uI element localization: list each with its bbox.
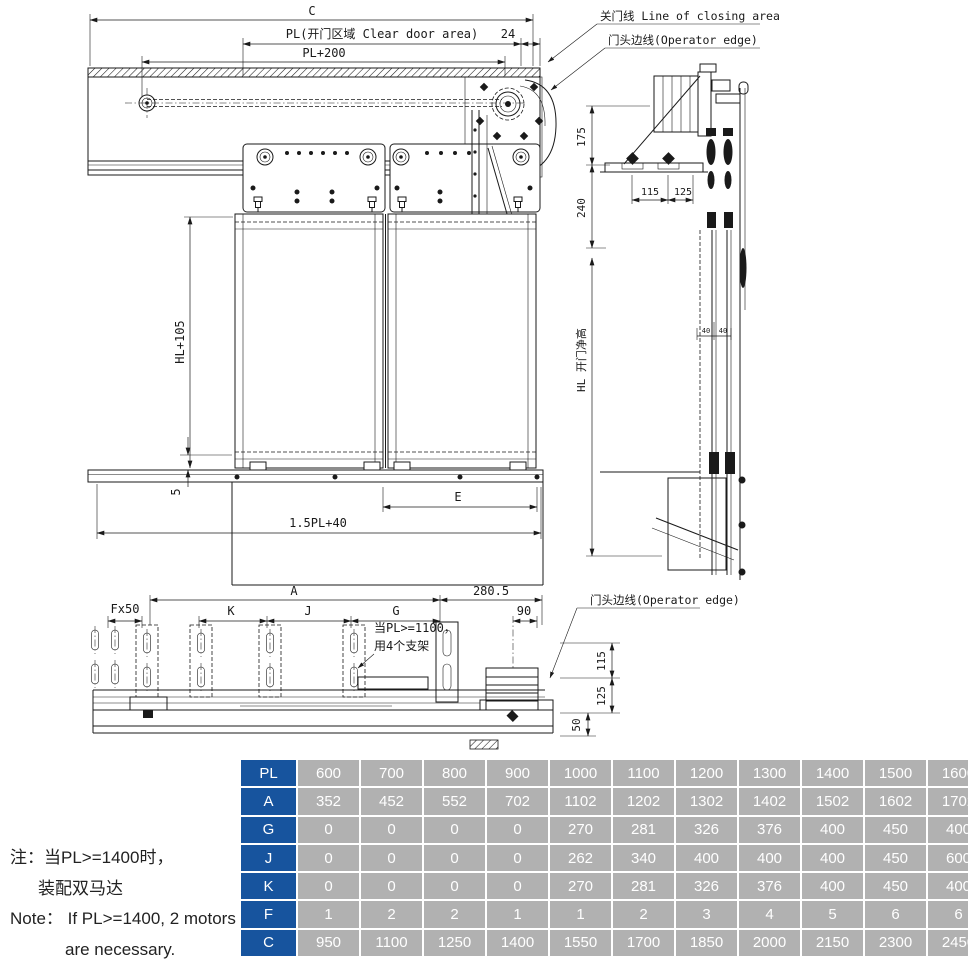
table-cell: 1: [298, 901, 359, 927]
side-rollers: [706, 128, 733, 228]
table-cell: 2: [424, 901, 485, 927]
drawing-sheet: C PL(开门区域 Clear door area) 24 PL+200 关门线…: [0, 0, 968, 979]
dim-a: A: [290, 584, 298, 598]
table-cell: 2450: [928, 930, 968, 956]
note-line-zh-2: 装配双马达: [10, 874, 245, 905]
table-cell: 1700: [613, 930, 674, 956]
table-cell: 281: [613, 817, 674, 843]
table-cell: 552: [424, 788, 485, 814]
table-cell: 0: [361, 817, 422, 843]
dim-24: 24: [501, 27, 515, 41]
table-cell: 800: [424, 760, 485, 786]
dim-125-plan: 125: [595, 686, 608, 706]
table-cell: 0: [424, 817, 485, 843]
table-cell: 270: [550, 873, 611, 899]
table-cell: 1100: [613, 760, 674, 786]
table-cell: 400: [802, 817, 863, 843]
dim-40-b: 40: [719, 327, 727, 335]
dim-240: 240: [575, 198, 588, 218]
table-cell: 702: [487, 788, 548, 814]
label-closing-line: 关门线 Line of closing area: [600, 9, 780, 23]
table-cell: 1000: [550, 760, 611, 786]
table-cell: 400: [928, 873, 968, 899]
table-cell: 400: [802, 873, 863, 899]
dim-115-side: 115: [641, 187, 659, 198]
dim-pl-clear: PL(开门区域 Clear door area): [286, 26, 479, 41]
table-cell: 3: [676, 901, 737, 927]
table-cell: 0: [361, 873, 422, 899]
table-cell: 400: [928, 817, 968, 843]
table-cell: 1400: [802, 760, 863, 786]
table-cell: 1302: [676, 788, 737, 814]
table-row-label-G: G: [241, 817, 296, 843]
table-cell: 600: [298, 760, 359, 786]
table-cell: 376: [739, 873, 800, 899]
table-row-label-C: C: [241, 930, 296, 956]
door-panel-left: [235, 214, 383, 468]
dim-125-side: 125: [674, 187, 692, 198]
table-cell: 0: [487, 873, 548, 899]
side-view: 115 125 40 40 175: [574, 64, 748, 580]
table-cell: 352: [298, 788, 359, 814]
table-cell: 600: [928, 845, 968, 871]
table-cell: 6: [928, 901, 968, 927]
spec-table: PL60070080090010001100120013001400150016…: [241, 760, 968, 956]
table-cell: 1502: [802, 788, 863, 814]
table-row-label-J: J: [241, 845, 296, 871]
table-cell: 2: [361, 901, 422, 927]
dim-115-plan: 115: [595, 651, 608, 671]
note-line-en-1: Note： If PL>=1400, 2 motors: [10, 904, 245, 935]
dim-50: 50: [570, 718, 583, 731]
dim-hl105: HL+105: [173, 320, 187, 363]
dim-pl200: PL+200: [302, 46, 345, 60]
table-row-label-A: A: [241, 788, 296, 814]
table-cell: 1500: [865, 760, 926, 786]
dim-90: 90: [517, 604, 531, 618]
side-sill: [600, 452, 746, 576]
table-cell: 700: [361, 760, 422, 786]
front-view: [88, 68, 556, 585]
dim-k: K: [227, 604, 235, 618]
table-cell: 6: [865, 901, 926, 927]
table-cell: 1602: [865, 788, 926, 814]
plan-motor: [486, 668, 538, 710]
table-cell: 0: [487, 845, 548, 871]
table-row-label-PL: PL: [241, 760, 296, 786]
table-cell: 1402: [739, 788, 800, 814]
table-cell: 2: [613, 901, 674, 927]
table-cell: 0: [298, 845, 359, 871]
table-cell: 1300: [739, 760, 800, 786]
technical-drawing: C PL(开门区域 Clear door area) 24 PL+200 关门线…: [0, 0, 968, 760]
note-line-en-2: are necessary.: [10, 935, 245, 966]
table-cell: 2150: [802, 930, 863, 956]
plan-view: A 280.5 Fx50 K J G 90: [92, 584, 740, 749]
table-cell: 0: [424, 873, 485, 899]
door-panel-right: [388, 214, 536, 468]
table-cell: 326: [676, 817, 737, 843]
dim-fx50: Fx50: [111, 602, 140, 616]
table-row-label-K: K: [241, 873, 296, 899]
dim-j: J: [304, 604, 311, 618]
table-cell: 1: [550, 901, 611, 927]
table-cell: 1702: [928, 788, 968, 814]
dim-c: C: [308, 4, 315, 18]
table-cell: 1550: [550, 930, 611, 956]
table-cell: 950: [298, 930, 359, 956]
table-cell: 5: [802, 901, 863, 927]
note-block: 注：当PL>=1400时， 装配双马达 Note： If PL>=1400, 2…: [10, 843, 245, 965]
table-cell: 262: [550, 845, 611, 871]
top-dimensions: C PL(开门区域 Clear door area) 24 PL+200 关门线…: [90, 4, 780, 97]
side-motor: [654, 64, 740, 136]
dim-15pl40: 1.5PL+40: [289, 516, 347, 530]
dim-hl-clear: HL 开门净高: [574, 328, 588, 392]
label-operator-edge-top: 门头边线(Operator edge): [608, 33, 758, 47]
table-cell: 1102: [550, 788, 611, 814]
table-cell: 1100: [361, 930, 422, 956]
label-support-note-2: 用4个支架: [374, 639, 429, 653]
table-cell: 400: [802, 845, 863, 871]
table-cell: 0: [298, 873, 359, 899]
table-cell: 400: [676, 845, 737, 871]
table-cell: 1600: [928, 760, 968, 786]
table-cell: 0: [424, 845, 485, 871]
table-cell: 900: [487, 760, 548, 786]
table-cell: 0: [361, 845, 422, 871]
table-cell: 0: [487, 817, 548, 843]
table-cell: 2000: [739, 930, 800, 956]
table-cell: 340: [613, 845, 674, 871]
label-operator-edge-bottom: 门头边线(Operator edge): [590, 593, 740, 607]
dim-175: 175: [575, 127, 588, 147]
plan-base-rail: [93, 690, 553, 749]
table-cell: 281: [613, 873, 674, 899]
table-cell: 4: [739, 901, 800, 927]
table-cell: 450: [865, 845, 926, 871]
table-cell: 400: [739, 845, 800, 871]
table-cell: 450: [865, 873, 926, 899]
table-cell: 0: [298, 817, 359, 843]
dim-e: E: [454, 490, 461, 504]
dim-40-a: 40: [702, 327, 710, 335]
table-cell: 1: [487, 901, 548, 927]
table-cell: 452: [361, 788, 422, 814]
dim-5: 5: [169, 488, 183, 495]
table-cell: 1400: [487, 930, 548, 956]
table-cell: 1850: [676, 930, 737, 956]
table-cell: 1250: [424, 930, 485, 956]
dim-280-5: 280.5: [473, 584, 509, 598]
hanger-plate-left: [243, 144, 385, 212]
table-row-label-F: F: [241, 901, 296, 927]
dim-g: G: [392, 604, 399, 618]
table-cell: 1200: [676, 760, 737, 786]
table-cell: 270: [550, 817, 611, 843]
table-cell: 326: [676, 873, 737, 899]
table-cell: 1202: [613, 788, 674, 814]
table-cell: 2300: [865, 930, 926, 956]
table-cell: 450: [865, 817, 926, 843]
note-line-zh-1: 注：当PL>=1400时，: [10, 843, 245, 874]
table-cell: 376: [739, 817, 800, 843]
label-support-note-1: 当PL>=1100，: [374, 621, 456, 635]
